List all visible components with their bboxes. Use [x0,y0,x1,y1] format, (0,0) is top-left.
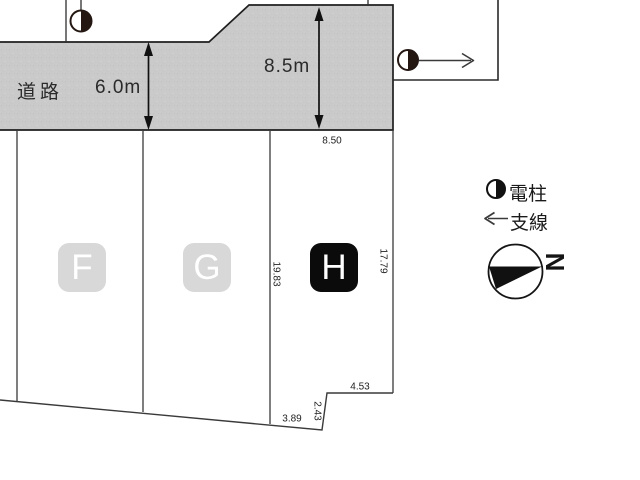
east-side-dimension: 17.79 [378,248,389,273]
road-label: 道路 [17,77,63,104]
utility-pole-icon [398,50,418,70]
legend-utility-pole-icon [487,180,505,198]
plot-g-badge: G [183,243,231,292]
road-depth-dimension: 8.5m [264,56,310,78]
legend-guy-wire-label: 支線 [510,208,548,235]
legend-utility-pole-label: 電柱 [509,179,547,206]
plot-f-badge: F [58,243,106,292]
step-top-dimension: 4.53 [350,382,369,393]
north-label: N [542,250,568,274]
road-area [0,5,393,130]
road-width-dimension: 6.0m [95,77,141,99]
rear-boundary-line [0,393,393,430]
west-side-dimension: 19.83 [271,261,282,286]
site-plan-diagram: 道路 6.0m 8.5m 8.50 19.83 17.79 4.53 2.43 … [0,0,640,480]
north-compass-icon [489,245,543,299]
frontage-dimension: 8.50 [322,136,341,147]
legend-guy-wire-arrow-icon [485,213,508,225]
utility-pole-icon [71,11,92,32]
step-side-dimension: 2.43 [312,401,323,420]
guy-wire-arrow-icon [419,54,474,68]
plot-h-badge: H [310,243,358,292]
rear-dimension: 3.89 [282,414,301,425]
